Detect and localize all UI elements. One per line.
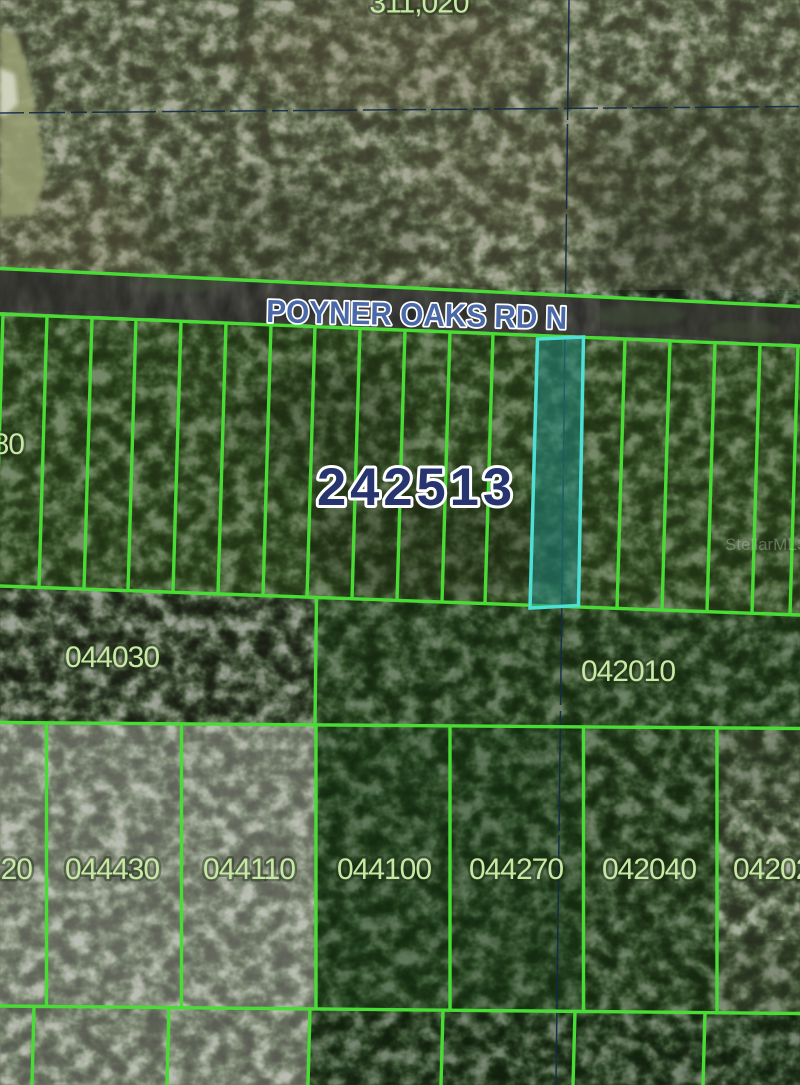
svg-text:StellarMLS: StellarMLS bbox=[725, 535, 800, 554]
svg-text:80: 80 bbox=[0, 428, 24, 461]
svg-text:20: 20 bbox=[1, 853, 33, 886]
svg-text:044110: 044110 bbox=[203, 853, 295, 886]
svg-text:044030: 044030 bbox=[65, 641, 159, 674]
svg-text:044270: 044270 bbox=[469, 853, 563, 886]
svg-text:311,020: 311,020 bbox=[369, 0, 469, 20]
svg-text:042020: 042020 bbox=[733, 853, 800, 886]
svg-text:042040: 042040 bbox=[602, 853, 696, 886]
svg-text:242513: 242513 bbox=[317, 458, 516, 517]
svg-text:044430: 044430 bbox=[65, 853, 159, 886]
svg-text:042010: 042010 bbox=[581, 655, 675, 688]
svg-text:044100: 044100 bbox=[337, 853, 431, 886]
svg-text:POYNER OAKS RD N: POYNER OAKS RD N bbox=[266, 293, 568, 336]
